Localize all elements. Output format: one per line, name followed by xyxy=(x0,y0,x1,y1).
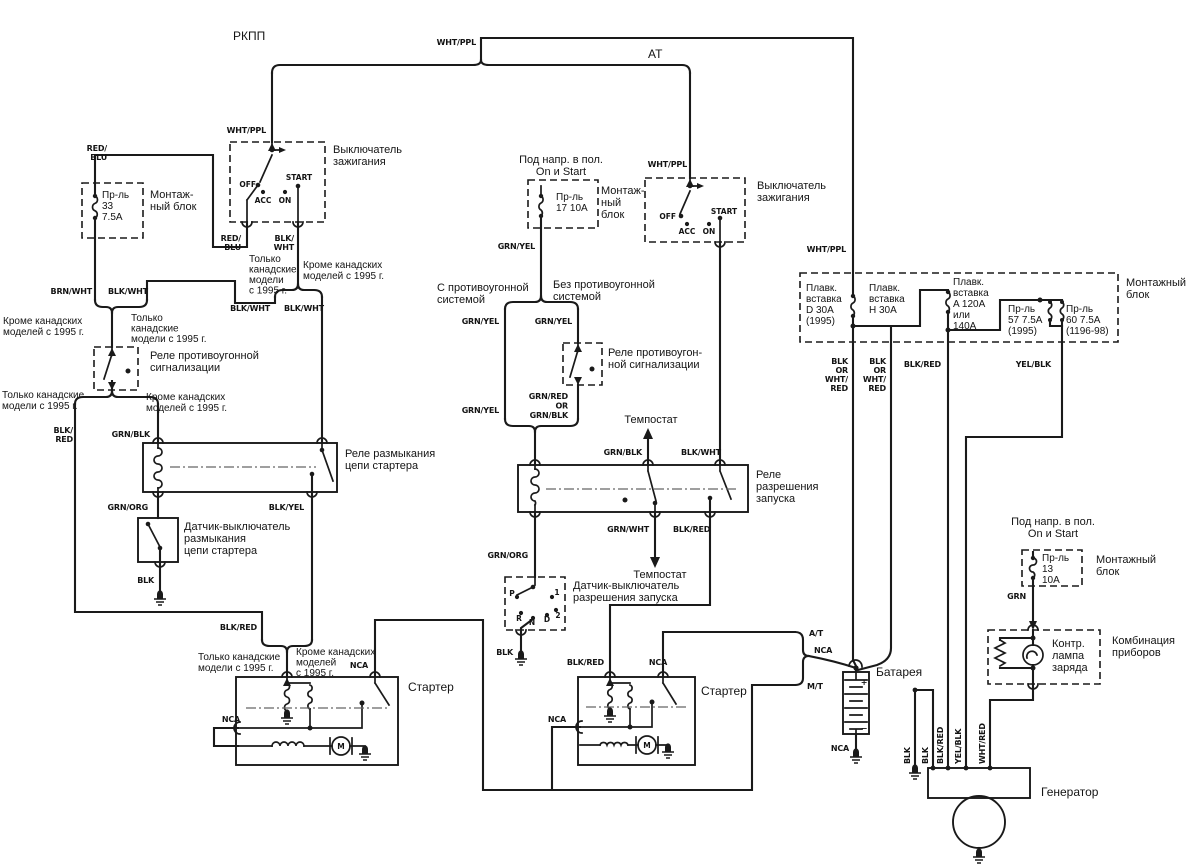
label-fuse13: Пр-ль1310А xyxy=(1042,553,1069,586)
label-at-brace: A/T xyxy=(809,629,824,638)
label-motor1: M xyxy=(337,742,344,751)
ign1-entry-arrow xyxy=(268,143,276,151)
label-sensor2-label: Датчик-выключательразрешения запуска xyxy=(573,580,680,604)
label-blkwht-br-l: BLK/WHT xyxy=(230,304,271,313)
wire-5760-join xyxy=(1050,320,1062,326)
label-ign2-title: Выключательзажигания xyxy=(757,180,826,204)
label-nca-st1-top: NCA xyxy=(350,661,369,670)
ign2-acc-arrow xyxy=(697,183,704,189)
label-pos-1: 1 xyxy=(554,588,559,597)
wire-whtred-gen xyxy=(990,684,1033,768)
brace-merge-left xyxy=(95,300,147,313)
label-ign1-title: Выключательзажигания xyxy=(333,144,402,168)
label-blkyel: BLK/YEL xyxy=(269,503,304,512)
label-blkwht-mid: BLK/WHT xyxy=(681,448,722,457)
label-blkred-left: BLK/RED xyxy=(53,426,73,444)
generator-body xyxy=(928,768,1030,798)
label-grnyel-3: GRN/YEL xyxy=(462,406,499,415)
label-at-top: АТ xyxy=(648,47,663,61)
label-lamp-label: Контр.лампазаряда xyxy=(1052,638,1089,674)
label-mont2: Монтаж-ныйблок xyxy=(601,185,645,221)
label-bat-plus: + xyxy=(861,678,868,687)
label-grnyel-2: GRN/YEL xyxy=(535,317,572,326)
label-on1: ON xyxy=(279,196,292,205)
label-generator-label: Генератор xyxy=(1041,785,1099,799)
label-blk-rot-2: BLK xyxy=(921,746,930,764)
brace-merge-mid xyxy=(505,419,578,432)
label-podnapr2: Под напр. в пол.On и Start xyxy=(1011,516,1095,540)
label-relay1-label: Реле противоугоннойсигнализации xyxy=(150,350,259,374)
ground-icon xyxy=(359,745,371,760)
label-redblu-fuse: RED/BLU xyxy=(87,144,108,162)
label-bat-minus: − xyxy=(861,724,868,733)
relay3-entry-arrow xyxy=(574,344,582,352)
label-kombi: Комбинацияприборов xyxy=(1112,635,1175,659)
label-rkpp: РКПП xyxy=(233,29,265,43)
label-whtppl-right: WHT/PPL xyxy=(807,245,846,254)
label-blkwht-br-r: BLK/WHT xyxy=(284,304,325,313)
relay3-exit-arrow xyxy=(574,377,582,385)
label-redblu-ign1: RED/BLU xyxy=(221,234,242,252)
label-only-can-4: Только канадскиемодели с 1995 г. xyxy=(198,652,281,674)
ground-icon xyxy=(604,707,616,722)
brace-at-mt xyxy=(795,632,809,685)
label-blkred-mid: BLK/RED xyxy=(220,623,258,632)
starter-1-box xyxy=(236,677,398,765)
label-relay4-label: Релеразрешениязапуска xyxy=(756,469,819,505)
label-batareya: Батарея xyxy=(876,665,922,679)
label-blkred-mid2: BLK/RED xyxy=(673,525,711,534)
label-fuse33: Пр-ль337.5А xyxy=(102,190,129,223)
starter1-entry-arrow xyxy=(283,678,291,686)
label-grnorg-left: GRN/ORG xyxy=(108,503,148,512)
ground-icon xyxy=(850,748,862,763)
label-nca-bat2: NCA xyxy=(831,744,850,753)
label-starter2-label: Стартер xyxy=(701,684,747,698)
label-tempostat-up: Темпостат xyxy=(624,414,677,426)
label-fuseA: Плавк.вставкаA 120Aили140A xyxy=(953,277,989,332)
label-bez-protiv: Без противоугоннойсистемой xyxy=(553,279,655,303)
label-pos-2: 2 xyxy=(555,611,560,620)
label-sensor1-label: Датчик-выключательразмыканияцепи стартер… xyxy=(184,521,291,557)
wire-col-d-battery xyxy=(853,316,856,672)
antitheft-relay-1-box xyxy=(94,347,138,390)
label-grnyel-0: GRN/YEL xyxy=(498,242,535,251)
label-pos-d: D xyxy=(544,615,550,624)
ground-icon xyxy=(515,650,527,665)
label-mt-brace: M/T xyxy=(807,682,823,691)
label-start1: START xyxy=(286,173,313,182)
label-blkred-right: BLK/RED xyxy=(904,360,942,369)
wire-nca-at xyxy=(663,632,795,677)
label-fuse17: Пр-ль17 10А xyxy=(556,192,588,214)
label-blk-mid: BLK xyxy=(496,648,514,657)
label-brnwht: BRN/WHT xyxy=(51,287,93,296)
label-off1: OFF xyxy=(239,180,256,189)
label-podnapr1: Под напр. в пол.On и Start xyxy=(519,154,603,178)
tempostat-down-arrow xyxy=(650,557,660,568)
label-starter1-label: Стартер xyxy=(408,680,454,694)
label-grnyel-1: GRN/YEL xyxy=(462,317,499,326)
label-mont3: Монтажныйблок xyxy=(1096,554,1156,578)
label-grnblk-mid: GRN/BLK xyxy=(604,448,643,457)
label-only-can-3: Только канадскиемодели с 1995 г. xyxy=(2,390,85,412)
starter2-entry-arrow xyxy=(606,678,614,686)
relay1-entry-arrow xyxy=(108,348,116,356)
label-whtppl-ign2: WHT/PPL xyxy=(648,160,687,169)
generator-circle xyxy=(953,796,1005,848)
label-fuseH: Плавк.вставкаH 30A xyxy=(869,283,905,316)
schematic-canvas: РКППАТWHT/PPLWHT/PPLВыключательзажигания… xyxy=(0,0,1200,866)
ign1-acc-arrow xyxy=(279,147,286,153)
ground-icon xyxy=(281,709,293,724)
label-krome-can-3: Кроме канадскихмоделей с 1995 г. xyxy=(146,392,227,414)
label-blkred-mid3: BLK/RED xyxy=(567,658,605,667)
label-acc2: ACC xyxy=(679,227,696,236)
brace-rkpp-at xyxy=(272,60,690,73)
label-motor2: M xyxy=(643,741,650,750)
label-pos-p: P xyxy=(509,589,515,598)
label-blk-or-1: BLKORWHT/RED xyxy=(825,357,849,393)
label-nca-bat: NCA xyxy=(814,646,833,655)
label-krome-can-1: Кроме канадскихмоделей с 1995 г. xyxy=(303,260,384,282)
label-nca-mid: NCA xyxy=(649,658,668,667)
label-grnblk-left: GRN/BLK xyxy=(112,430,151,439)
label-blkwht-left: BLK/WHT xyxy=(108,287,149,296)
label-whtred-rot: WHT/RED xyxy=(978,723,987,764)
ground-icon xyxy=(909,764,921,779)
label-only-can-2: Толькоканадскиемодели с 1995 г. xyxy=(131,313,207,345)
label-fuseD: Плавк.вставкаD 30A(1995) xyxy=(806,283,842,327)
ign2-entry-arrow xyxy=(686,179,694,187)
label-fuse57: Пр-ль57 7.5A(1995) xyxy=(1008,304,1043,337)
label-mont-right: Монтажныйблок xyxy=(1126,277,1186,301)
ground-icon xyxy=(154,590,166,605)
wire-starter2-nca-loop xyxy=(552,727,580,790)
label-pos-r: R xyxy=(516,614,522,623)
label-pos-n: N xyxy=(529,618,535,627)
label-blk-rot-1: BLK xyxy=(903,746,912,764)
wiring-diagram-page: РКППАТWHT/PPLWHT/PPLВыключательзажигания… xyxy=(0,0,1200,866)
ground-icon xyxy=(973,848,985,863)
label-relay2-label: Реле размыканияцепи стартера xyxy=(345,448,435,472)
label-yelblk-rot: YEL/BLK xyxy=(954,728,963,765)
label-start2: START xyxy=(711,207,738,216)
label-grnred-or: GRN/REDORGRN/BLK xyxy=(529,392,569,420)
label-whtppl-bus: WHT/PPL xyxy=(437,38,476,47)
label-grnorg-mid: GRN/ORG xyxy=(488,551,528,560)
tempostat-up-arrow xyxy=(643,428,653,439)
label-blkred-rot: BLK/RED xyxy=(936,726,945,764)
label-grnwht: GRN/WHT xyxy=(607,525,650,534)
label-grn: GRN xyxy=(1007,592,1026,601)
label-yelblk-right: YEL/BLK xyxy=(1015,360,1052,369)
relay1-exit-arrow xyxy=(108,382,116,390)
label-nca-st1-left: NCA xyxy=(222,715,241,724)
label-krome-can-2: Кроме канадскихмоделей с 1995 г. xyxy=(3,316,84,338)
label-blkwht-ign1: BLK/WHT xyxy=(274,234,295,252)
label-blk-or-2: BLKORWHT/RED xyxy=(863,357,887,393)
label-on2: ON xyxy=(703,227,716,236)
label-whtppl-ign1: WHT/PPL xyxy=(227,126,266,135)
antitheft-relay-2-box xyxy=(563,343,602,385)
label-relay3-label: Реле противоугон-ной сигнализации xyxy=(608,347,703,371)
label-blk-left: BLK xyxy=(137,576,155,585)
label-mont1: Монтаж-ный блок xyxy=(150,189,197,213)
label-nca-st2-left: NCA xyxy=(548,715,567,724)
label-fuse60: Пр-ль60 7.5A(1196-98) xyxy=(1066,304,1109,337)
label-off2: OFF xyxy=(659,212,676,221)
starter-cut-switch-box xyxy=(138,518,178,562)
label-acc1: ACC xyxy=(255,196,272,205)
